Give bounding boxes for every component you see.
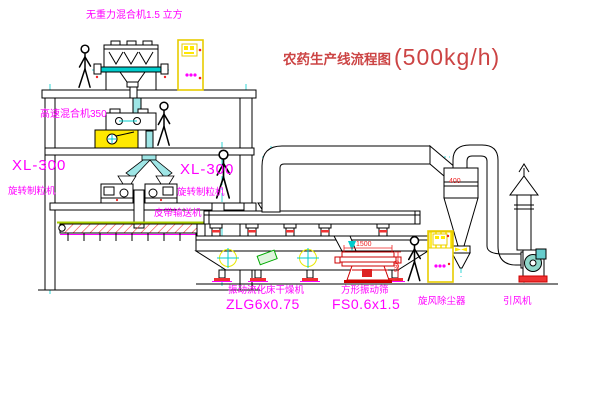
person-figure — [79, 45, 91, 87]
exhaust-stack — [510, 164, 538, 250]
control-cabinet-top — [178, 40, 203, 90]
belt-conveyor-machine — [57, 223, 206, 242]
granulator-right-machine — [145, 184, 177, 203]
fan-motor — [536, 249, 546, 259]
label-dryer-name: 振动流化床干燥机 — [228, 286, 304, 296]
label-dryer-model: ZLG6x0.75 — [226, 297, 300, 311]
induced-draft-fan-machine — [519, 249, 547, 282]
gravity-mixer — [94, 41, 168, 98]
dryer-nozzles — [210, 224, 389, 236]
granulator-left-machine — [101, 184, 133, 203]
exhaust-duct — [262, 146, 430, 212]
label-granulator-left-name: 旋转制粒机 — [8, 187, 56, 197]
label-granulator-right-model: XL-300 — [180, 162, 234, 177]
dim-cyclone: 400 — [449, 178, 461, 185]
person-figure — [158, 102, 170, 145]
fan-base — [519, 276, 547, 282]
process-flow-diagram: 农药生产线流程图 (500kg/h) 无重力混合机1.5 立方 高速混合机350… — [0, 0, 600, 403]
label-high-speed-mixer: 高速混合机350 — [40, 110, 107, 120]
indicator-dot — [199, 49, 202, 52]
dim-sieve-width: 1500 — [356, 241, 372, 248]
label-sieve-name: 方形振动筛 — [341, 286, 389, 296]
weather-cap — [510, 176, 538, 195]
label-belt-conveyor: 皮带输送机 — [154, 209, 202, 219]
control-cabinet-right — [428, 231, 453, 282]
y-splitter-pipe — [118, 155, 174, 184]
discharge-pipe — [146, 131, 153, 148]
label-granulator-right-name: 旋转制粒机 — [177, 188, 225, 198]
title-capacity: (500kg/h) — [394, 44, 500, 71]
high-speed-mixer — [95, 98, 156, 148]
title-text: 农药生产线流程图 — [283, 48, 391, 68]
diagram-title: 农药生产线流程图 (500kg/h) — [283, 44, 500, 71]
dim-sieve-height: 580 — [394, 260, 401, 272]
label-cyclone: 旋风除尘器 — [418, 297, 466, 307]
label-granulator-left-model: XL-300 — [12, 158, 66, 173]
mixer-shaft — [98, 67, 164, 72]
label-sieve-model: FS0.6x1.5 — [332, 297, 400, 311]
label-fan: 引风机 — [503, 297, 532, 307]
label-gravity-mixer: 无重力混合机1.5 立方 — [86, 11, 183, 21]
